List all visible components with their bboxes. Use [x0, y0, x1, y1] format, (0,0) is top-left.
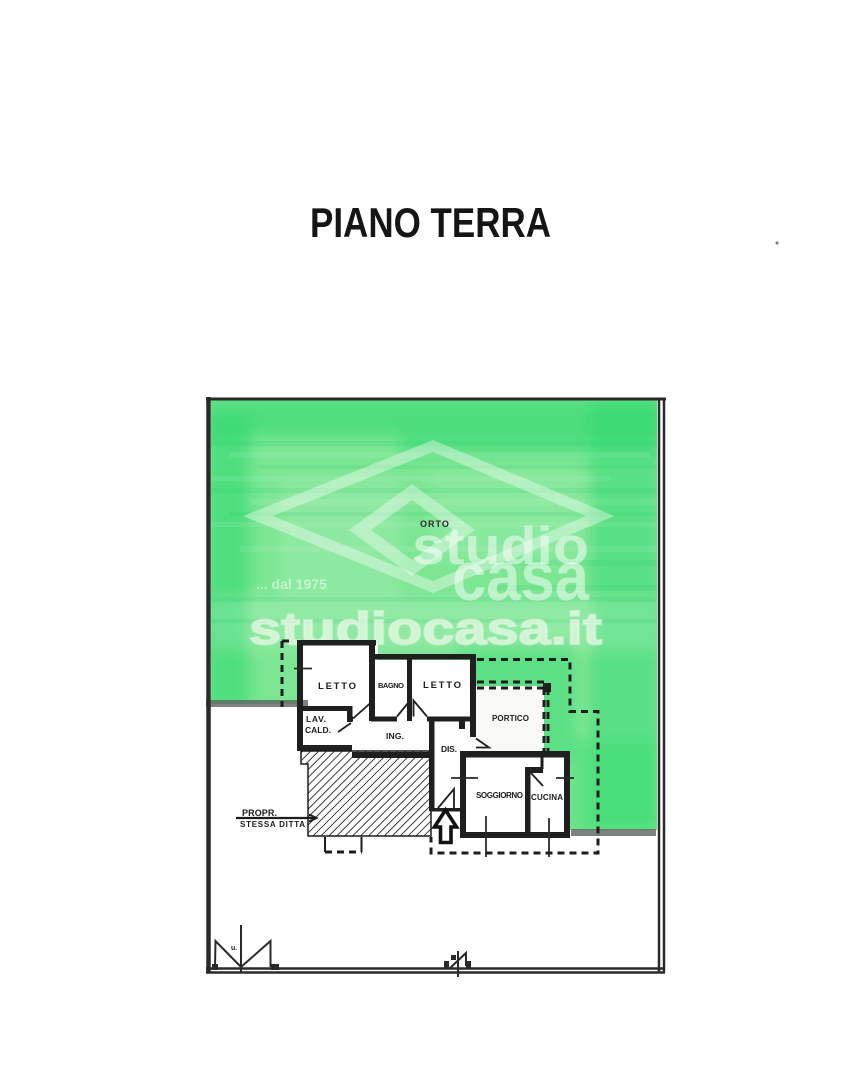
svg-text:SOGGIORNO: SOGGIORNO: [476, 791, 523, 800]
svg-text:LETTO: LETTO: [423, 680, 461, 691]
svg-text:DIS.: DIS.: [441, 744, 457, 754]
svg-text:ORTO: ORTO: [420, 519, 450, 529]
svg-text:ING.: ING.: [386, 731, 404, 741]
svg-text:PORTICO: PORTICO: [492, 714, 529, 723]
svg-text:... dal 1975: ... dal 1975: [256, 576, 327, 592]
svg-text:BAGNO: BAGNO: [378, 681, 404, 690]
svg-text:CALD.: CALD.: [305, 725, 331, 735]
svg-text:PROPR.: PROPR.: [242, 808, 277, 818]
svg-text:STESSA DITTA: STESSA DITTA: [240, 820, 305, 829]
svg-text:CUCINA: CUCINA: [531, 793, 563, 802]
svg-text:LETTO: LETTO: [318, 681, 356, 692]
svg-text:LAV.: LAV.: [306, 714, 326, 724]
svg-text:u.: u.: [231, 945, 237, 952]
svg-text:PIANO TERRA: PIANO TERRA: [310, 199, 551, 246]
